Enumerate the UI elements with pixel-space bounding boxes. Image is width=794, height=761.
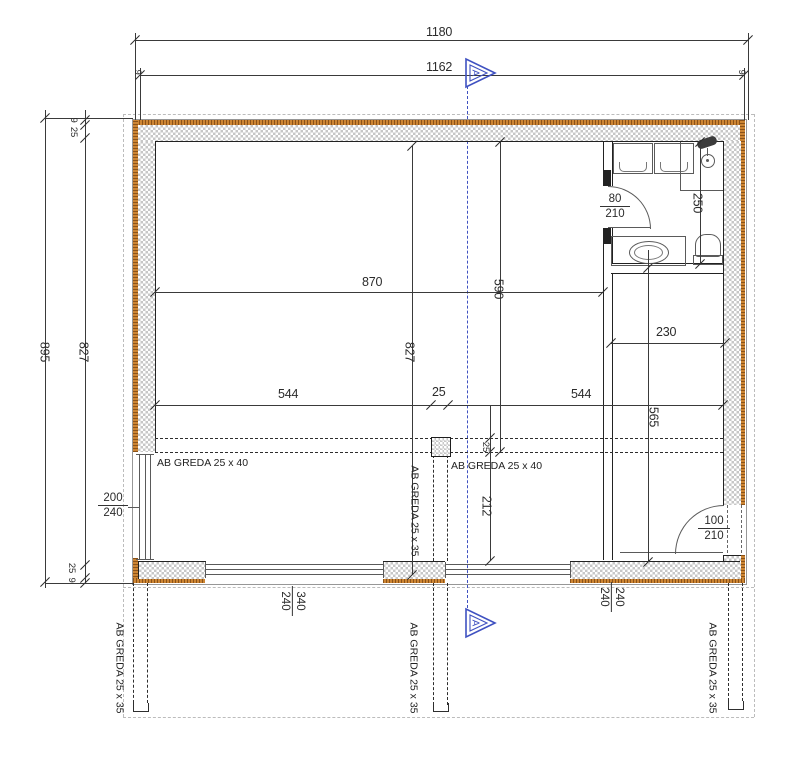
- dim-25-top: 25: [68, 127, 78, 137]
- left-window-leader: [128, 507, 140, 508]
- wall-hatch-bottom-pier: [383, 561, 445, 579]
- concrete-column: [431, 437, 451, 457]
- dim-right-room-width: 230: [656, 326, 676, 339]
- beam-label-h-left: AB GREDA 25 x 40: [157, 458, 248, 469]
- wall-outer-contour: [132, 119, 747, 585]
- beam-label-h-right: AB GREDA 25 x 40: [451, 461, 542, 472]
- dim-beam-to-wall: 212: [480, 496, 493, 516]
- section-marker-top-label: A: [470, 70, 481, 77]
- interior-wall-lower: [603, 228, 613, 560]
- dim-9-left-end: 9: [132, 69, 142, 74]
- dim-overall-width: 1180: [426, 26, 452, 39]
- section-marker-top: A: [463, 56, 499, 90]
- dim-bath-depth: 250: [691, 193, 704, 213]
- wall-hatch-bottom-right: [570, 561, 740, 579]
- dim-column-width: 25: [432, 386, 446, 399]
- wall-hatch-top: [138, 125, 740, 142]
- bottom-window-left-label: 340 240: [277, 586, 307, 616]
- dim-span-left: 544: [278, 388, 298, 401]
- section-marker-bottom: A: [463, 606, 499, 640]
- beam-label-v-bottom-center: AB GREDA 25 x 35: [408, 622, 419, 713]
- entry-door-label: 100 210: [698, 514, 730, 544]
- washing-machine: [613, 143, 653, 174]
- dim-overall-height: 895: [38, 342, 51, 362]
- dim-9-bottom: 9: [66, 577, 76, 582]
- dim-9-right-end: 9: [736, 69, 746, 74]
- dim-25-bottom: 25: [66, 563, 76, 573]
- dim-beam-width: 25: [480, 442, 490, 452]
- bath-door-label: 80 210: [600, 192, 630, 222]
- dim-inner-height: 827: [77, 342, 90, 362]
- sink: [629, 241, 669, 264]
- door-jamb-top: [603, 170, 611, 186]
- door-jamb-bottom: [603, 228, 611, 244]
- dim-clear-width: 1162: [426, 61, 452, 74]
- dim-right-room-height: 565: [647, 407, 660, 427]
- bath-door-leaf: [608, 227, 650, 228]
- section-marker-bottom-label: A: [470, 620, 481, 627]
- dim-room-width: 870: [362, 276, 382, 289]
- wall-hatch-bottom-left: [138, 561, 206, 579]
- beam-label-v-bottom-right: AB GREDA 25 x 35: [707, 622, 718, 713]
- dim-9-top: 9: [68, 117, 78, 122]
- dryer: [654, 143, 694, 174]
- dim-span-right: 544: [571, 388, 591, 401]
- dim-inner-height-mid: 827: [403, 342, 416, 362]
- floor-plan: 1180 1162 9 9 895 827 9 25 25 9 870 590 …: [0, 0, 794, 761]
- entry-door-leaf: [620, 552, 723, 553]
- left-window-label: 200 240: [98, 491, 128, 521]
- dim-room-height-to-beam: 590: [492, 279, 505, 299]
- wall-hatch-right: [723, 141, 741, 505]
- beam-label-v-center: AB GREDA 25 x 35: [409, 465, 420, 556]
- beam-label-v-bottom-left: AB GREDA 25 x 35: [114, 622, 125, 713]
- bottom-window-right-label: 240 240: [596, 582, 626, 612]
